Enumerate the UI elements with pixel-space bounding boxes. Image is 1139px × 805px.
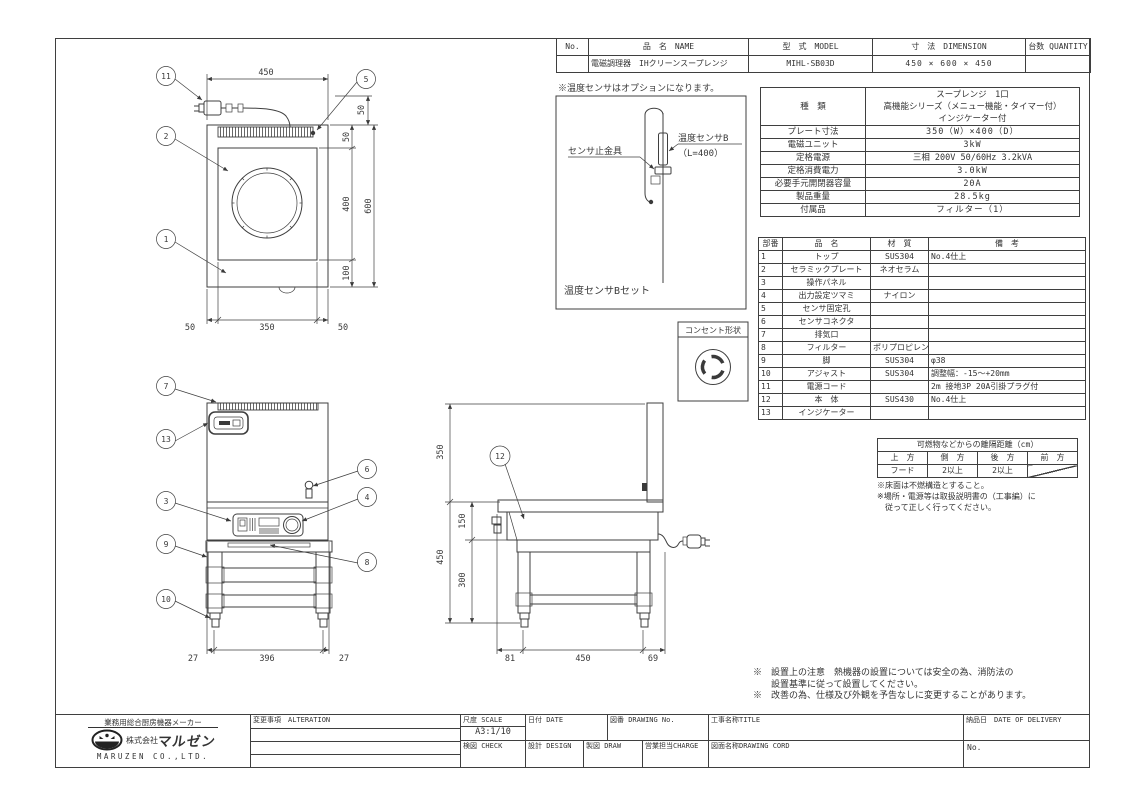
- part-no: 3: [759, 277, 783, 290]
- part-material: SUS304: [871, 368, 929, 381]
- check-cell: 検図 CHECK: [460, 740, 526, 768]
- part-no: 8: [759, 342, 783, 355]
- balloon-12: 12: [495, 452, 505, 461]
- part-note: [929, 407, 1086, 420]
- sensor-length-label: （L=400）: [678, 148, 723, 159]
- divider: [251, 728, 460, 729]
- dim-side-front: 81: [505, 654, 515, 664]
- vent-louver-plan: [218, 127, 313, 137]
- scale-label: 尺度 SCALE: [461, 715, 525, 726]
- spec-label: プレート寸法: [761, 126, 866, 139]
- part-no: 6: [759, 316, 783, 329]
- drawing-cord-label: 図面名称DRAWING CORD: [709, 741, 963, 752]
- part-note: No.4仕上: [929, 251, 1086, 264]
- table-row: 9脚SUS304φ38: [759, 355, 1086, 368]
- part-no: 13: [759, 407, 783, 420]
- balloon-10: 10: [161, 595, 171, 604]
- part-material: ネオセラム: [871, 264, 929, 277]
- spec-label: 製品重量: [761, 191, 866, 204]
- dim-side-body: 150: [458, 513, 468, 528]
- knob-side: [492, 517, 501, 524]
- clearance-title: 可燃物などからの離隔距離（cm）: [878, 439, 1078, 452]
- part-material: SUS430: [871, 394, 929, 407]
- part-note: [929, 277, 1086, 290]
- dim-plan-cord: 50: [357, 105, 367, 115]
- dim-side-stand: 300: [458, 572, 468, 587]
- delivery-cell: 納品日 DATE OF DELIVERY: [963, 714, 1090, 741]
- stand-side: [516, 540, 652, 627]
- part-material: ナイロン: [871, 290, 929, 303]
- col-dimension: 寸 法 DIMENSION: [873, 39, 1026, 56]
- part-no: 9: [759, 355, 783, 368]
- table-row: 4出力設定ツマミナイロン: [759, 290, 1086, 303]
- part-name: アジャスト: [783, 368, 871, 381]
- product-name: 電磁調理器 IHクリーンスープレンジ: [589, 56, 749, 73]
- parts-col-no: 部番: [759, 238, 783, 251]
- col-quantity: 台数 QUANTITY: [1026, 39, 1091, 56]
- dim-front-right: 27: [339, 654, 349, 664]
- header-table: No. 品 名 NAME 型 式 MODEL 寸 法 DIMENSION 台数 …: [556, 38, 1091, 73]
- company-brand: マルゼン: [157, 730, 218, 750]
- footnote-line: 設置基準に従って設置してください。: [753, 680, 1098, 692]
- dim-plan-total-h: 600: [364, 198, 374, 213]
- balloon-9: 9: [164, 540, 169, 549]
- table-row: 10アジャストSUS304調整幅：-15～+20mm: [759, 368, 1086, 381]
- model-code: MIHL-SB03D: [749, 56, 873, 73]
- date-cell: 日付 DATE: [525, 714, 608, 741]
- dim-plan-left: 50: [185, 323, 195, 333]
- part-note: [929, 303, 1086, 316]
- sensor-set-caption: 温度センサBセット: [564, 284, 650, 297]
- clearance-val: フード: [878, 465, 928, 478]
- spec-value: スープレンジ 1口 高機能シリーズ（メニュー機能・タイマー付） インジケーター付: [866, 88, 1080, 126]
- work-title-cell: 工事名称TITLE: [708, 714, 964, 741]
- body-side: [507, 512, 658, 540]
- side-view: 350 450 150 300 81 450 69: [436, 403, 710, 664]
- delivery-label: 納品日 DATE OF DELIVERY: [964, 715, 1089, 726]
- table-row: 5センサ固定孔: [759, 303, 1086, 316]
- alteration-label: 変更事項 ALTERATION: [251, 715, 460, 726]
- divider: [251, 754, 460, 755]
- company-prefix: 株式会社: [126, 735, 158, 746]
- part-no: 1: [759, 251, 783, 264]
- clearance-notes: ※床面は不燃構造とすること。 ※場所・電源等は取扱説明書の（工事編）に 従って正…: [877, 480, 1087, 513]
- heater-circle-inner: [237, 173, 297, 233]
- company-en: MARUZEN CO.,LTD.: [56, 752, 250, 761]
- part-no: 2: [759, 264, 783, 277]
- overall-dimension: 450 × 600 × 450: [873, 56, 1026, 73]
- spec-value: 3kW: [866, 139, 1080, 152]
- spec-value: 350（W）×400（D）: [866, 126, 1080, 139]
- date-label: 日付 DATE: [526, 715, 607, 726]
- dim-side-depth: 450: [575, 654, 590, 664]
- front-view: 27 396 27: [188, 403, 349, 664]
- clearance-col: 後 方: [978, 452, 1028, 465]
- part-material: [871, 329, 929, 342]
- scale-value: A3:1/10: [461, 726, 525, 737]
- dim-plan-plate-w: 350: [259, 323, 274, 333]
- part-no: 12: [759, 394, 783, 407]
- drawing-no-cell: 図番 DRAWING No.: [607, 714, 709, 741]
- balloon-8: 8: [365, 558, 370, 567]
- sensor-option-note: ※温度センサはオプションになります。: [558, 82, 719, 94]
- footnotes: ※ 設置上の注意 熱機器の設置については安全の為、消防法の 設置基準に従って設置…: [753, 668, 1098, 703]
- part-name: インジケーター: [783, 407, 871, 420]
- charge-cell: 営業担当CHARGE: [642, 740, 709, 768]
- control-panel: [233, 514, 303, 536]
- parts-table: 部番 品 名 材 質 備 考 1トップSUS304No.4仕上 2セラミックプレ…: [758, 237, 1086, 420]
- dim-front-mid: 396: [259, 654, 274, 664]
- maker-cell: 業務用総合厨房機器メーカー 株式会社 マルゼン MARUZEN CO.,LTD.: [55, 714, 251, 768]
- balloon-13: 13: [161, 435, 171, 444]
- plan-view: 450 50 50 400 100 600 50 350 5: [185, 68, 378, 333]
- part-material: [871, 316, 929, 329]
- table-row: 1トップSUS304No.4仕上: [759, 251, 1086, 264]
- spec-value: 3.0kW: [866, 165, 1080, 178]
- part-note: [929, 342, 1086, 355]
- parts-col-material: 材 質: [871, 238, 929, 251]
- part-note: 2m 接地3P 20A引掛プラグ付: [929, 381, 1086, 394]
- part-name: 電源コード: [783, 381, 871, 394]
- part-material: [871, 407, 929, 420]
- part-name: センサ固定孔: [783, 303, 871, 316]
- table-row: 12本 体SUS430No.4仕上: [759, 394, 1086, 407]
- balloons: 11 5 2 1 7 13 6 3 4 9 8 10 12: [157, 67, 525, 619]
- alteration-cell: 変更事項 ALTERATION: [250, 714, 461, 768]
- maker-tagline: 業務用総合厨房機器メーカー: [88, 718, 218, 728]
- part-note: [929, 329, 1086, 342]
- table-row: 11電源コード2m 接地3P 20A引掛プラグ付: [759, 381, 1086, 394]
- panel-display: [259, 518, 279, 526]
- clearance-val: 2以上: [978, 465, 1028, 478]
- dim-plan-bottom: 100: [342, 265, 352, 280]
- spec-value: 20A: [866, 178, 1080, 191]
- design-cell: 設計 DESIGN: [525, 740, 584, 768]
- part-material: [871, 277, 929, 290]
- part-name: 本 体: [783, 394, 871, 407]
- spec-table: 種 類 スープレンジ 1口 高機能シリーズ（メニュー機能・タイマー付） インジケ…: [760, 87, 1080, 217]
- clearance-col: 側 方: [928, 452, 978, 465]
- draw-label: 製図 DRAW: [584, 741, 642, 752]
- sensor-label: 温度センサB: [678, 132, 728, 144]
- maker-logo-row: 株式会社 マルゼン: [56, 728, 250, 752]
- sensor-option-box: ※温度センサはオプションになります。 センサ止金具 温度センサB （L=400）…: [556, 82, 746, 309]
- no-label: No.: [964, 741, 1089, 754]
- part-no: 10: [759, 368, 783, 381]
- dim-plan-louver: 50: [342, 132, 352, 142]
- part-material: ポリプロピレン: [871, 342, 929, 355]
- part-no: 11: [759, 381, 783, 394]
- part-name: 脚: [783, 355, 871, 368]
- balloon-4: 4: [365, 493, 370, 502]
- clearance-col: 前 方: [1028, 452, 1078, 465]
- heater-ticks: [232, 168, 302, 238]
- col-model: 型 式 MODEL: [749, 39, 873, 56]
- part-note: [929, 264, 1086, 277]
- part-note: [929, 290, 1086, 303]
- check-label: 検図 CHECK: [461, 741, 525, 752]
- power-plug-side: [658, 534, 710, 548]
- drawing-cord-cell: 図面名称DRAWING CORD: [708, 740, 964, 768]
- sensor-connector: [305, 481, 313, 498]
- parts-col-note: 備 考: [929, 238, 1086, 251]
- col-no: No.: [557, 39, 589, 56]
- balloon-3: 3: [164, 497, 169, 506]
- part-note: 調整幅：-15～+20mm: [929, 368, 1086, 381]
- knob-bump-plan: [279, 287, 295, 293]
- clearance-table: 可燃物などからの離隔距離（cm） 上 方 側 方 後 方 前 方 フード 2以上…: [877, 438, 1078, 478]
- spec-label: 種 類: [761, 88, 866, 126]
- part-material: [871, 381, 929, 394]
- dim-side-rear: 69: [648, 654, 658, 664]
- dim-front-left: 27: [188, 654, 198, 664]
- connector-side: [642, 483, 647, 491]
- charge-label: 営業担当CHARGE: [643, 741, 708, 752]
- filter-slot: [228, 543, 310, 547]
- spec-label: 付属品: [761, 204, 866, 217]
- part-name: 出力設定ツマミ: [783, 290, 871, 303]
- spec-value: 28.5kg: [866, 191, 1080, 204]
- part-name: センサコネクタ: [783, 316, 871, 329]
- part-no: 5: [759, 303, 783, 316]
- vent-louver-front: [218, 403, 318, 410]
- col-name: 品 名 NAME: [589, 39, 749, 56]
- top-slab: [498, 500, 663, 512]
- dim-side-top: 350: [436, 444, 446, 459]
- dim-plan-width: 450: [258, 68, 273, 78]
- plan-dimensions: 450 50 50 400 100 600 50 350 5: [185, 68, 378, 333]
- spec-value: フィルター（1）: [866, 204, 1080, 217]
- dim-plan-right: 50: [338, 323, 348, 333]
- part-name: トップ: [783, 251, 871, 264]
- spec-value: 三相 200V 50/60Hz 3.2kVA: [866, 152, 1080, 165]
- part-note: [929, 316, 1086, 329]
- spec-label: 電磁ユニット: [761, 139, 866, 152]
- draw-cell: 製図 DRAW: [583, 740, 643, 768]
- no-cell: No.: [963, 740, 1090, 768]
- part-name: 操作パネル: [783, 277, 871, 290]
- back-panel: [647, 403, 663, 502]
- dim-plan-plate-h: 400: [342, 196, 352, 211]
- cell-no: [557, 56, 589, 73]
- maruzen-logo-icon: [90, 728, 124, 752]
- clearance-na-cell: [1028, 465, 1078, 478]
- clearance-val: 2以上: [928, 465, 978, 478]
- part-material: SUS304: [871, 355, 929, 368]
- table-row: 13インジケーター: [759, 407, 1086, 420]
- parts-col-name: 品 名: [783, 238, 871, 251]
- drawing-no-label: 図番 DRAWING No.: [608, 715, 708, 726]
- drawing-sheet: { "header_table": { "cols": {"no":"No.",…: [0, 0, 1139, 805]
- outlet-box: コンセント形状: [678, 322, 748, 401]
- table-row: 8フィルターポリプロピレン: [759, 342, 1086, 355]
- part-material: [871, 303, 929, 316]
- work-title-label: 工事名称TITLE: [709, 715, 963, 726]
- balloon-1: 1: [164, 235, 169, 244]
- clearance-col: 上 方: [878, 452, 928, 465]
- part-no: 7: [759, 329, 783, 342]
- balloon-11: 11: [161, 72, 171, 81]
- table-row: 7排気口: [759, 329, 1086, 342]
- part-name: セラミックプレート: [783, 264, 871, 277]
- part-material: SUS304: [871, 251, 929, 264]
- design-label: 設計 DESIGN: [526, 741, 583, 752]
- part-name: 排気口: [783, 329, 871, 342]
- balloon-7: 7: [164, 382, 169, 391]
- balloon-6: 6: [365, 465, 370, 474]
- divider: [251, 741, 460, 742]
- table-row: 3操作パネル: [759, 277, 1086, 290]
- cell-quantity: [1026, 56, 1091, 73]
- spec-label: 定格消費電力: [761, 165, 866, 178]
- front-dimensions: 27 396 27: [188, 542, 349, 664]
- indicator: [209, 412, 248, 434]
- balloon-5: 5: [364, 75, 369, 84]
- part-no: 4: [759, 290, 783, 303]
- part-name: フィルター: [783, 342, 871, 355]
- spec-label: 必要手元開閉器容量: [761, 178, 866, 191]
- part-note: No.4仕上: [929, 394, 1086, 407]
- spec-label: 定格電源: [761, 152, 866, 165]
- dim-side-lower: 450: [436, 549, 446, 564]
- balloon-2: 2: [164, 132, 169, 141]
- table-row: 2セラミックプレートネオセラム: [759, 264, 1086, 277]
- power-plug-plan: [194, 101, 290, 127]
- table-row: 6センサコネクタ: [759, 316, 1086, 329]
- sensor-clamp-label: センサ止金具: [568, 145, 622, 157]
- part-note: φ38: [929, 355, 1086, 368]
- footnote-line: ※ 設置上の注意 熱機器の設置については安全の為、消防法の: [753, 668, 1098, 680]
- side-dimensions: 350 450 150 300 81 450 69: [436, 404, 665, 664]
- outlet-label: コンセント形状: [685, 325, 741, 335]
- footnote-line: ※ 改善の為、仕様及び外観を予告なしに変更することがあります。: [753, 691, 1098, 703]
- scale-cell: 尺度 SCALE A3:1/10: [460, 714, 526, 741]
- sensor-hole-dot: [311, 131, 315, 135]
